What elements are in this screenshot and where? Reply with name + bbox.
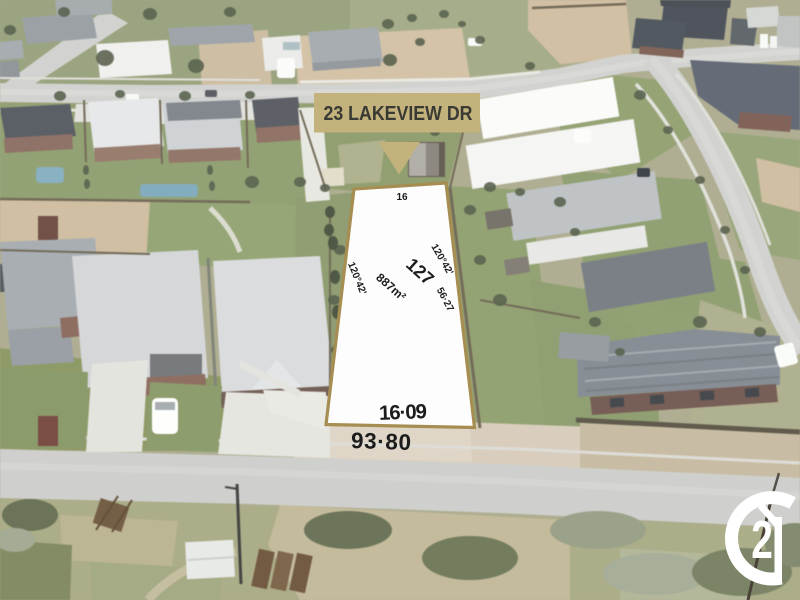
- svg-text:16·09: 16·09: [379, 400, 428, 425]
- svg-text:93·80: 93·80: [351, 428, 412, 455]
- svg-text:23 LAKEVIEW DR: 23 LAKEVIEW DR: [324, 103, 473, 125]
- svg-text:16: 16: [396, 192, 408, 203]
